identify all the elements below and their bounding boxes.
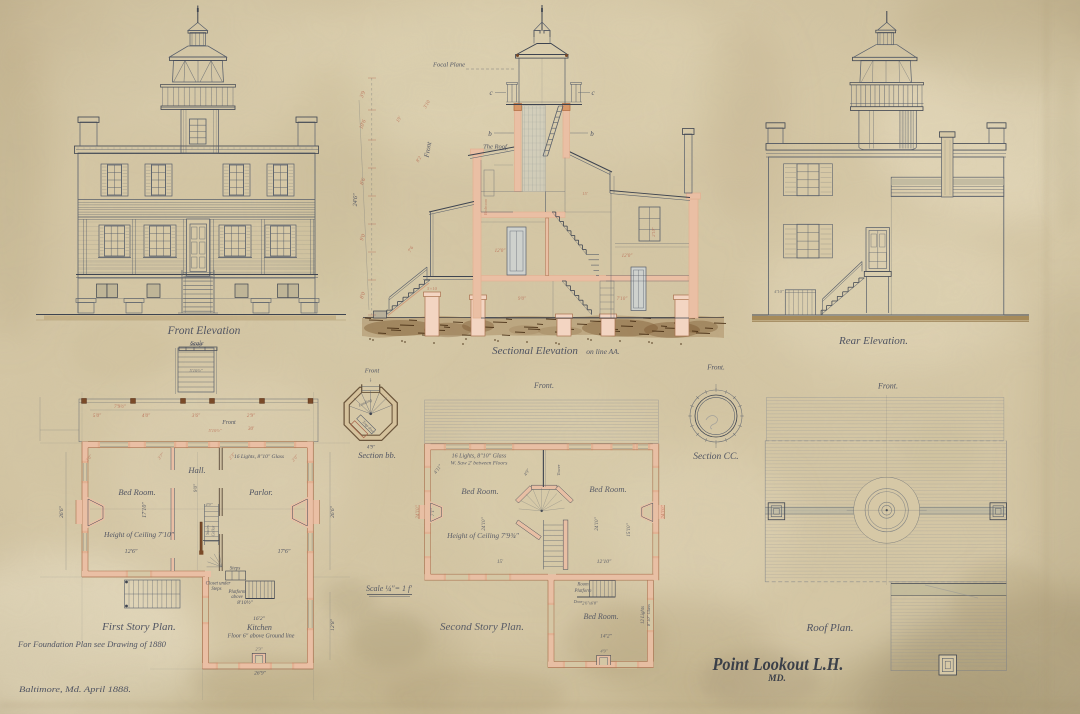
svg-text:Rear Elevation.: Rear Elevation.	[838, 335, 908, 347]
svg-text:For Foundation Plan see Drawin: For Foundation Plan see Drawing of 1880	[17, 639, 167, 649]
svg-text:Floor 6″ above Ground line: Floor 6″ above Ground line	[227, 634, 295, 640]
svg-text:5'0″: 5'0″	[93, 414, 102, 419]
svg-text:Bed Room.: Bed Room.	[118, 487, 155, 497]
svg-text:12'0″: 12'0″	[622, 254, 634, 259]
svg-text:Tower: Tower	[556, 464, 561, 475]
svg-text:24'10″: 24'10″	[595, 517, 600, 531]
svg-text:Bedroom: Bedroom	[483, 198, 488, 215]
svg-text:24'10″: 24'10″	[482, 517, 487, 531]
svg-text:15': 15'	[497, 560, 504, 565]
svg-text:5'10½″: 5'10½″	[190, 368, 203, 373]
svg-text:2'10″: 2'10″	[651, 227, 656, 237]
svg-text:24'10″: 24'10″	[662, 505, 667, 519]
svg-text:b: b	[590, 130, 594, 138]
svg-text:16'2″: 16'2″	[253, 616, 265, 622]
svg-text:12'8″: 12'8″	[330, 618, 336, 630]
svg-text:5×10: 5×10	[427, 286, 438, 291]
svg-text:Steps: Steps	[211, 587, 221, 592]
svg-text:4'0″: 4'0″	[142, 414, 151, 419]
svg-text:15'10″: 15'10″	[627, 523, 632, 537]
svg-text:4'10″: 4'10″	[774, 289, 784, 294]
svg-text:2'9″: 2'9″	[247, 414, 256, 419]
svg-text:4'9″: 4'9″	[600, 649, 607, 654]
svg-text:Cellar: Cellar	[211, 525, 216, 536]
svg-text:on line AA.: on line AA.	[586, 347, 620, 356]
svg-text:9'0″: 9'0″	[518, 297, 527, 302]
svg-text:Stairs: Stairs	[205, 525, 210, 535]
svg-text:Height of Ceiling 7'10″: Height of Ceiling 7'10″	[103, 530, 175, 539]
svg-text:24'6″: 24'6″	[352, 193, 359, 207]
svg-text:Height of Ceiling 7'9¾″: Height of Ceiling 7'9¾″	[446, 531, 520, 540]
svg-text:7'9½″: 7'9½″	[114, 405, 127, 410]
svg-text:Point Lookout L.H.: Point Lookout L.H.	[712, 654, 844, 674]
svg-text:MD.: MD.	[767, 674, 786, 684]
svg-text:26'6″: 26'6″	[330, 505, 336, 517]
svg-text:30': 30'	[248, 427, 255, 432]
svg-text:8'10½″: 8'10½″	[237, 599, 254, 606]
svg-text:Front Elevation: Front Elevation	[167, 325, 241, 337]
svg-text:4'9″: 4'9″	[205, 502, 212, 507]
svg-text:16 Lights, 8″10″ Glass: 16 Lights, 8″10″ Glass	[234, 454, 284, 460]
svg-text:Section bb.: Section bb.	[358, 450, 396, 460]
svg-text:Scale ¼″= 1 f′: Scale ¼″= 1 f′	[366, 584, 412, 593]
svg-text:W. Saw 2' between Floors: W. Saw 2' between Floors	[451, 461, 508, 467]
svg-text:9'0″: 9'0″	[194, 483, 199, 492]
svg-text:Front: Front	[364, 368, 380, 375]
svg-text:12'6″: 12'6″	[125, 549, 138, 555]
svg-text:12'10″: 12'10″	[597, 559, 612, 565]
svg-text:Hall.: Hall.	[187, 465, 205, 475]
svg-text:Front.: Front.	[533, 381, 554, 390]
svg-text:26'6″: 26'6″	[59, 505, 65, 517]
svg-text:Parlor.: Parlor.	[248, 487, 273, 497]
svg-text:Stoop: Stoop	[190, 342, 203, 348]
svg-text:2'6″x6'8″: 2'6″x6'8″	[582, 601, 598, 606]
svg-text:Baltimore, Md. April 1888.: Baltimore, Md. April 1888.	[19, 684, 131, 694]
svg-text:2'3″: 2'3″	[255, 647, 262, 652]
svg-text:↓: ↓	[369, 378, 372, 384]
svg-text:The Roof: The Roof	[483, 144, 508, 151]
svg-text:Bed Room.: Bed Room.	[589, 484, 626, 494]
svg-text:26'9″: 26'9″	[254, 671, 266, 677]
svg-text:First Story Plan.: First Story Plan.	[101, 621, 176, 633]
svg-text:Sectional Elevation: Sectional Elevation	[492, 345, 578, 357]
svg-text:Front: Front	[221, 420, 236, 426]
svg-text:17'10″: 17'10″	[142, 502, 148, 518]
svg-text:Front.: Front.	[706, 364, 725, 372]
svg-text:7'10″: 7'10″	[617, 297, 629, 302]
svg-text:17'6″: 17'6″	[278, 549, 291, 555]
svg-text:Closet under: Closet under	[206, 582, 231, 587]
svg-text:Kitchen: Kitchen	[246, 623, 272, 632]
svg-text:7'1″: 7'1″	[431, 507, 436, 516]
svg-text:16 Lights, 8″10″ Glass: 16 Lights, 8″10″ Glass	[452, 454, 507, 460]
svg-text:Front.: Front.	[877, 382, 898, 391]
svg-text:Focal Plane: Focal Plane	[432, 62, 465, 69]
svg-text:Roof Plan.: Roof Plan.	[805, 622, 853, 634]
svg-text:b: b	[488, 130, 492, 138]
svg-text:Bed Room.: Bed Room.	[583, 612, 618, 621]
svg-text:Section CC.: Section CC.	[693, 452, 738, 462]
svg-text:8″10″ Glass: 8″10″ Glass	[646, 604, 651, 626]
svg-text:Second Story Plan.: Second Story Plan.	[440, 621, 524, 633]
svg-text:Bed Room.: Bed Room.	[461, 486, 498, 496]
svg-text:12'0″: 12'0″	[495, 249, 507, 254]
svg-text:Steps: Steps	[230, 567, 241, 572]
svg-text:Room: Room	[576, 583, 589, 588]
svg-text:Platform: Platform	[573, 589, 592, 594]
svg-text:24'10″: 24'10″	[416, 505, 421, 519]
svg-text:14'2″: 14'2″	[600, 633, 612, 640]
svg-text:5'10½″: 5'10½″	[209, 428, 222, 433]
svg-text:3'6″: 3'6″	[192, 414, 201, 419]
